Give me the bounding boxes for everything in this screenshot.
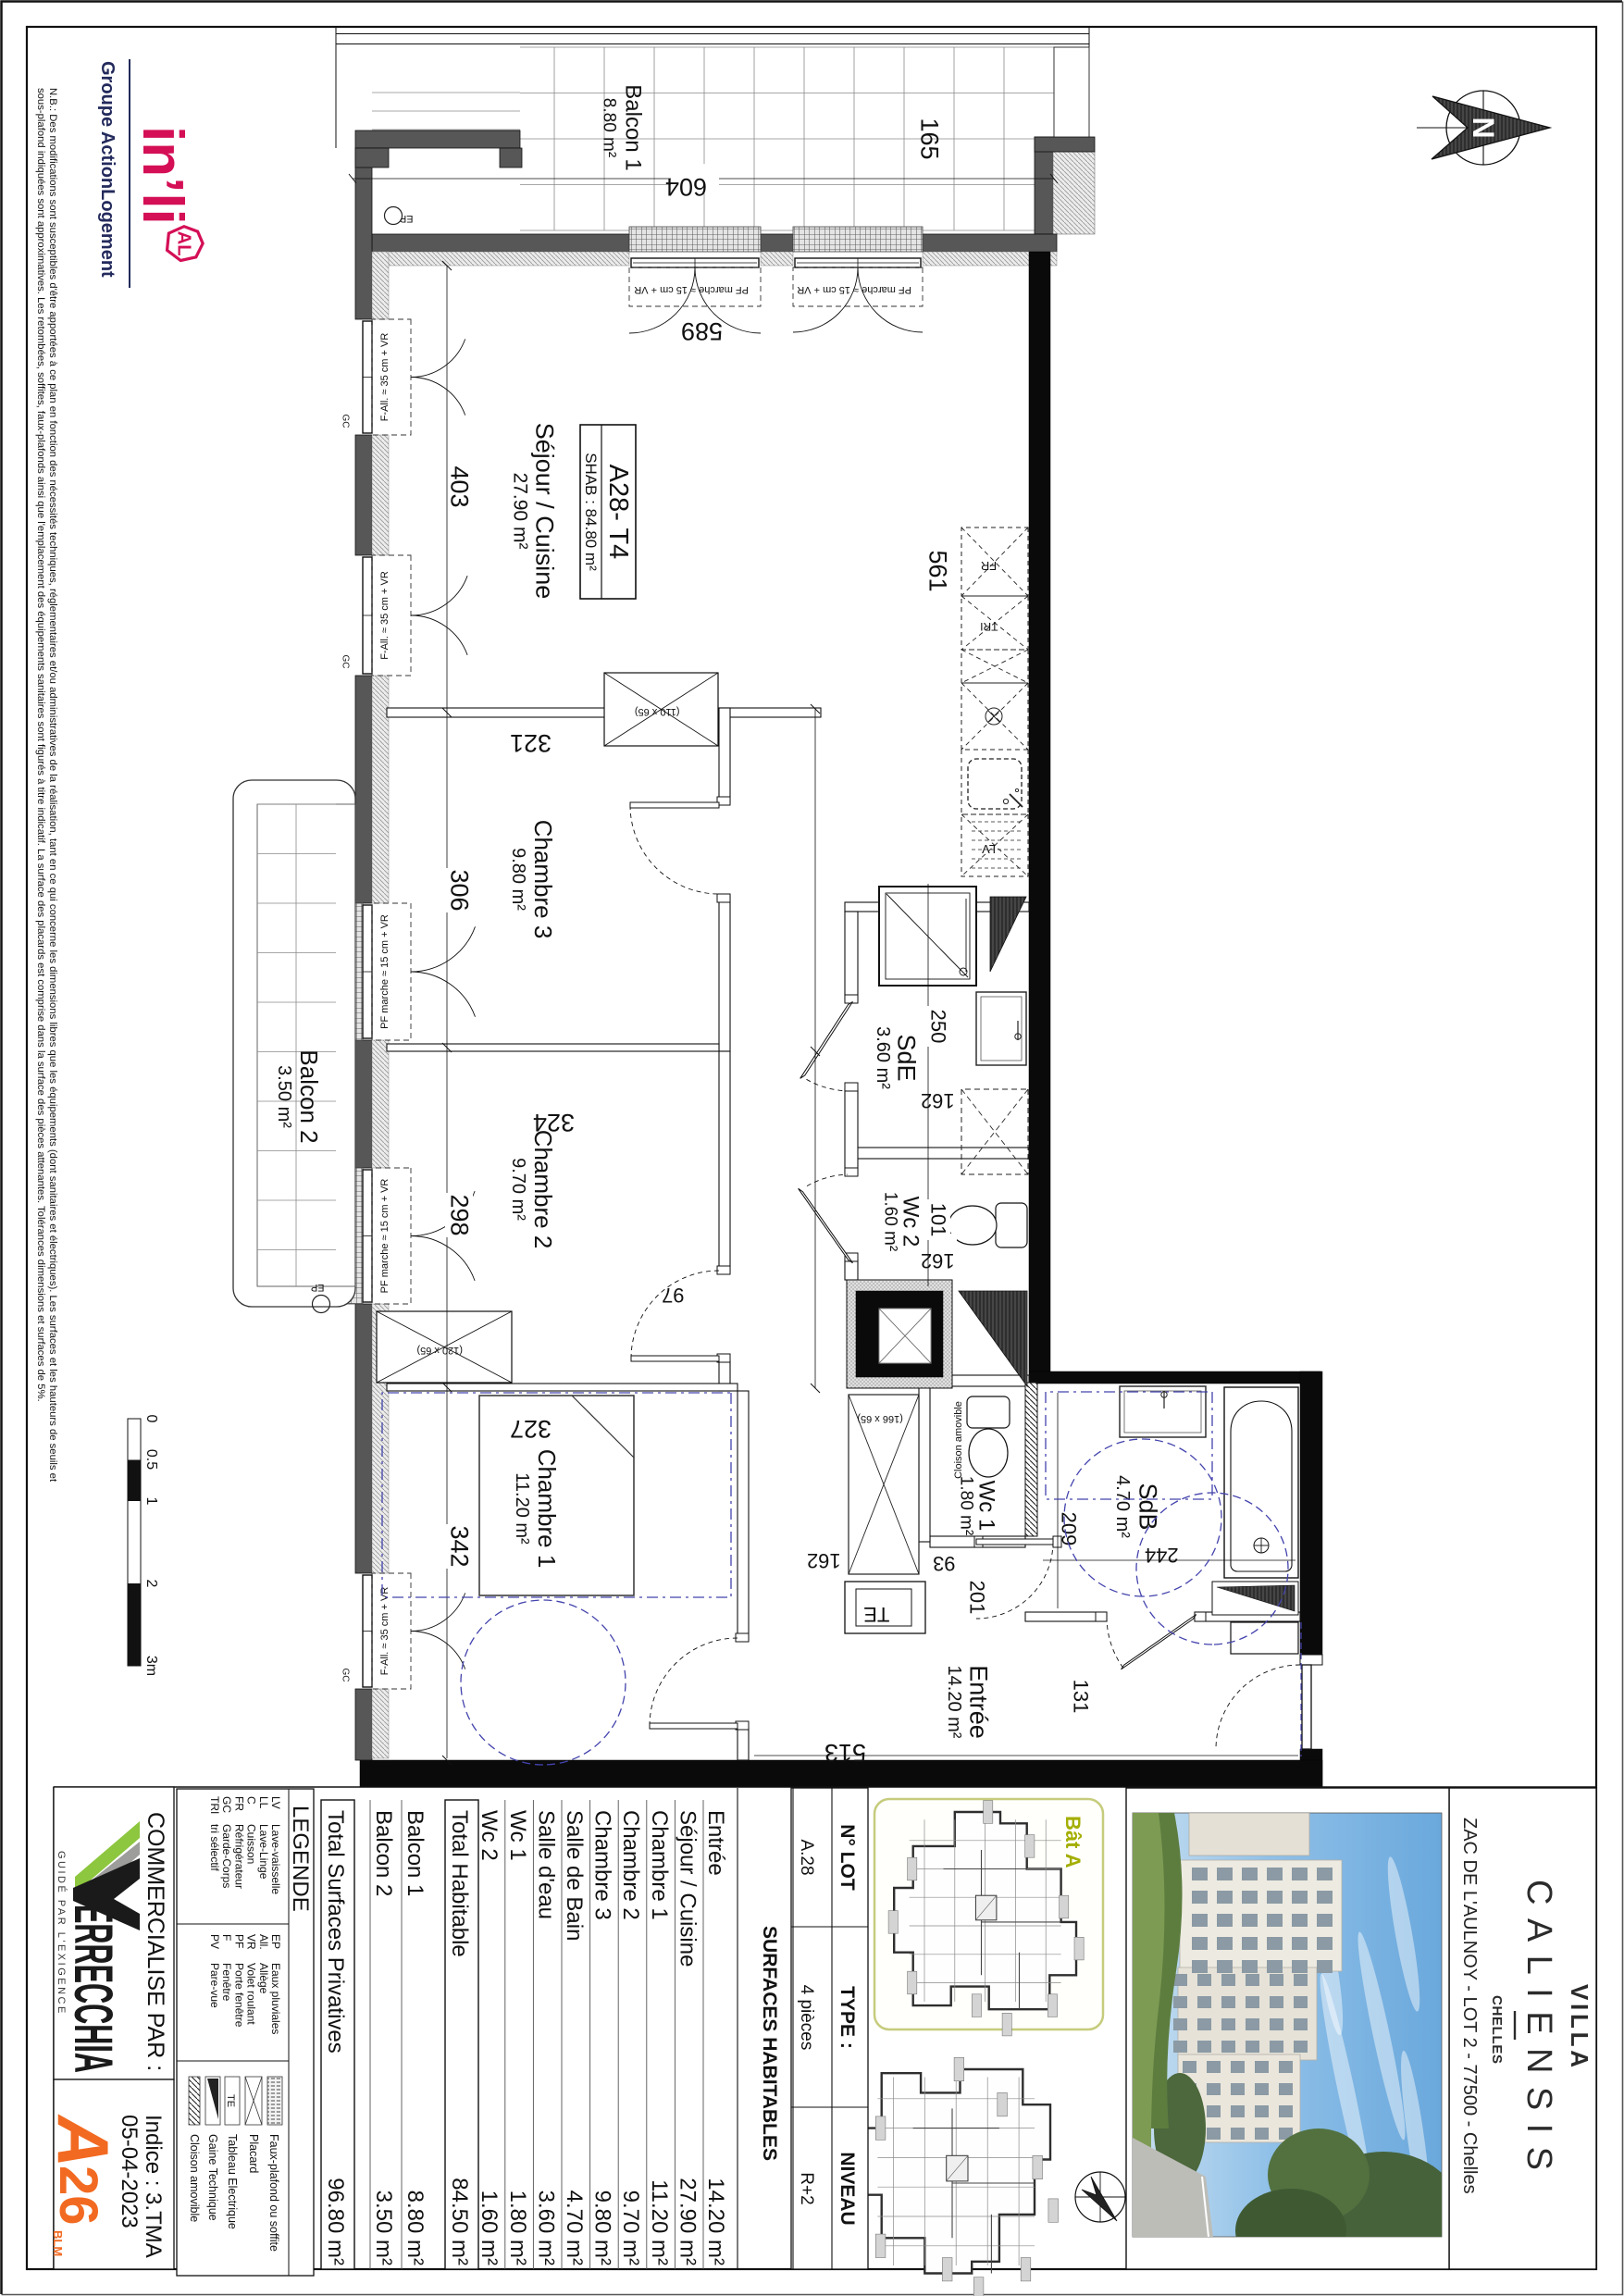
svg-text:Chambre 3: Chambre 3 (529, 820, 557, 939)
svg-text:Bât A: Bât A (1061, 1816, 1085, 1868)
svg-text:93: 93 (933, 1552, 955, 1575)
svg-text:101: 101 (926, 1203, 949, 1237)
svg-text:9.70 m²: 9.70 m² (618, 2191, 643, 2265)
svg-text:Wc 1: Wc 1 (974, 1481, 999, 1532)
svg-text:F-All. ≈ 35 cm + VR: F-All. ≈ 35 cm + VR (379, 571, 391, 660)
svg-text:Wc 1: Wc 1 (505, 1810, 530, 1861)
svg-text:Volet roulant: Volet roulant (245, 1963, 258, 2025)
svg-text:SURFACES HABITABLES: SURFACES HABITABLES (759, 1926, 780, 2161)
svg-text:342: 342 (446, 1525, 474, 1567)
svg-text:EP: EP (269, 1934, 282, 1949)
svg-text:F-All. ≈ 35 cm + VR: F-All. ≈ 35 cm + VR (379, 1587, 391, 1676)
svg-text:ZAC DE L'AULNOY - LOT 2 - 7750: ZAC DE L'AULNOY - LOT 2 - 77500 - Chelle… (1459, 1818, 1480, 2194)
svg-text:Séjour / Cuisine: Séjour / Cuisine (675, 1810, 700, 1967)
svg-text:Fenêtre: Fenêtre (220, 1963, 233, 2002)
svg-text:AL: AL (173, 231, 193, 256)
svg-text:Garde-Corps: Garde-Corps (220, 1824, 233, 1888)
svg-text:PV: PV (208, 1934, 221, 1949)
svg-text:244: 244 (1145, 1544, 1179, 1567)
svg-text:298: 298 (446, 1194, 474, 1235)
svg-text:N: N (1467, 117, 1500, 138)
svg-text:TRI: TRI (208, 1796, 221, 1814)
svg-text:Chambre 1: Chambre 1 (533, 1449, 561, 1569)
svg-text:Lave-Linge: Lave-Linge (257, 1824, 270, 1880)
svg-text:Allège: Allège (257, 1963, 270, 1994)
svg-text:3.50 m²: 3.50 m² (371, 2191, 396, 2265)
svg-text:Chambre 1: Chambre 1 (647, 1810, 672, 1920)
svg-text:Balcon 2: Balcon 2 (295, 1049, 323, 1143)
svg-text:Faux-plafond ou soffite: Faux-plafond ou soffite (267, 2134, 280, 2252)
svg-text:Balcon 1: Balcon 1 (621, 84, 646, 170)
svg-text:SHAB : 84.80 m²: SHAB : 84.80 m² (582, 453, 600, 571)
svg-text:1.60 m²: 1.60 m² (477, 2191, 502, 2265)
svg-text:403: 403 (446, 465, 474, 507)
svg-text:Cloison amovible: Cloison amovible (188, 2134, 201, 2222)
svg-text:LV: LV (269, 1796, 282, 1809)
svg-text:1.60 m²: 1.60 m² (880, 1192, 899, 1251)
svg-text:2: 2 (143, 1580, 159, 1588)
svg-text:Tableau Electrique: Tableau Electrique (226, 2134, 239, 2229)
svg-text:Groupe ActionLogement: Groupe ActionLogement (97, 61, 118, 278)
svg-text:327: 327 (510, 1415, 552, 1443)
svg-text:LL: LL (257, 1796, 270, 1809)
svg-text:131: 131 (1069, 1680, 1092, 1714)
svg-text:162: 162 (807, 1549, 841, 1572)
svg-text:Wc 2: Wc 2 (477, 1810, 502, 1861)
svg-text:11.20 m²: 11.20 m² (647, 2179, 672, 2265)
svg-text:Porte fenêtre: Porte fenêtre (232, 1963, 245, 2028)
svg-text:324: 324 (533, 1109, 575, 1136)
svg-text:Balcon 2: Balcon 2 (371, 1810, 396, 1896)
svg-text:A.28: A.28 (797, 1839, 816, 1875)
svg-text:TE: TE (863, 1603, 889, 1626)
svg-text:PF: PF (232, 1934, 245, 1948)
svg-text:1: 1 (143, 1497, 159, 1506)
svg-text:F-All. ≈ 35 cm + VR: F-All. ≈ 35 cm + VR (379, 333, 391, 422)
svg-text:Entrée: Entrée (965, 1665, 993, 1739)
svg-text:11.20 m²: 11.20 m² (512, 1472, 532, 1545)
svg-text:Cuisson: Cuisson (245, 1824, 258, 1864)
svg-text:BLM: BLM (51, 2230, 65, 2256)
svg-text:A: A (43, 2114, 124, 2167)
svg-text:TE: TE (225, 2094, 236, 2107)
svg-text:3m: 3m (143, 1656, 159, 1676)
svg-text:84.50 m²: 84.50 m² (447, 2178, 472, 2265)
svg-text:(120 x 65): (120 x 65) (416, 1345, 463, 1356)
svg-text:Balcon 1: Balcon 1 (403, 1810, 428, 1896)
svg-text:0: 0 (143, 1415, 159, 1423)
svg-text:Salle d'eau: Salle d'eau (533, 1810, 558, 1919)
svg-text:3.60 m²: 3.60 m² (873, 1026, 893, 1089)
svg-text:Chambre 2: Chambre 2 (618, 1810, 643, 1920)
svg-text:FR: FR (232, 1796, 245, 1811)
svg-text:250: 250 (926, 1010, 949, 1044)
svg-text:4 pièces: 4 pièces (797, 1985, 816, 2051)
svg-text:4.70 m²: 4.70 m² (562, 2191, 587, 2265)
svg-text:Eaux pluviales: Eaux pluviales (269, 1963, 282, 2034)
svg-text:Réfrigérateur: Réfrigérateur (232, 1824, 245, 1889)
svg-text:Total Habitable: Total Habitable (447, 1810, 472, 1957)
svg-text:27.90 m²: 27.90 m² (510, 473, 531, 550)
svg-text:589: 589 (681, 317, 723, 345)
svg-text:NIVEAU: NIVEAU (837, 2152, 858, 2225)
svg-text:C: C (245, 1796, 258, 1805)
svg-text:162: 162 (921, 1089, 955, 1112)
svg-text:Salle de Bain: Salle de Bain (562, 1810, 587, 1941)
svg-text:VILLA: VILLA (1566, 1984, 1593, 2067)
svg-text:N.B.: Des modifications sont s: N.B.: Des modifications sont susceptible… (47, 88, 58, 1483)
svg-text:GUIDÉ PAR L'EXIGENCE: GUIDÉ PAR L'EXIGENCE (56, 1851, 68, 2016)
svg-text:(110 x 65): (110 x 65) (635, 706, 680, 717)
svg-text:96.80 m²: 96.80 m² (323, 2178, 348, 2265)
svg-text:GC: GC (220, 1796, 233, 1813)
svg-text:Indice : 3.TMA: Indice : 3.TMA (141, 2115, 166, 2258)
svg-text:4.70 m²: 4.70 m² (1112, 1475, 1133, 1538)
svg-text:Pare-vue: Pare-vue (208, 1963, 221, 2008)
svg-text:27.90 m²: 27.90 m² (675, 2178, 700, 2265)
svg-text:SdB: SdB (1134, 1483, 1162, 1530)
svg-text:CHELLES: CHELLES (1489, 1995, 1505, 2064)
svg-text:26: 26 (48, 2166, 108, 2226)
svg-text:LEGENDE: LEGENDE (288, 1806, 313, 1912)
svg-text:8.80 m²: 8.80 m² (403, 2191, 428, 2265)
svg-text:PF marche ≈ 15 cm + VR: PF marche ≈ 15 cm + VR (379, 914, 391, 1029)
svg-text:All.: All. (257, 1934, 270, 1950)
svg-text:9.80 m²: 9.80 m² (590, 2191, 615, 2265)
svg-text:GC: GC (341, 1669, 351, 1682)
svg-text:(166 x 65): (166 x 65) (857, 1413, 903, 1424)
svg-text:Placard: Placard (247, 2134, 260, 2173)
svg-text:513: 513 (824, 1739, 866, 1767)
svg-text:VR: VR (245, 1934, 258, 1950)
svg-text:Lave-vaisselle: Lave-vaisselle (269, 1824, 282, 1894)
svg-text:LV: LV (982, 842, 996, 856)
svg-text:in’li: in’li (130, 126, 194, 225)
svg-text:1.80 m²: 1.80 m² (505, 2191, 530, 2265)
svg-text:Chambre 3: Chambre 3 (590, 1810, 615, 1920)
svg-text:9.80 m²: 9.80 m² (508, 848, 528, 911)
svg-text:97: 97 (662, 1284, 684, 1307)
svg-text:Cloison amovible: Cloison amovible (953, 1401, 964, 1479)
svg-text:Gaine Technique: Gaine Technique (206, 2134, 219, 2221)
svg-text:0.5: 0.5 (143, 1449, 159, 1470)
svg-text:3.50 m²: 3.50 m² (274, 1065, 294, 1128)
svg-text:165: 165 (916, 118, 944, 159)
svg-text:3.60 m²: 3.60 m² (533, 2191, 558, 2265)
svg-text:F: F (220, 1934, 233, 1941)
svg-text:Entrée: Entrée (703, 1810, 728, 1876)
svg-text:1.80 m²: 1.80 m² (956, 1476, 975, 1535)
svg-text:209: 209 (1057, 1512, 1080, 1546)
svg-text:14.20 m²: 14.20 m² (703, 2178, 728, 2265)
svg-text:9.70 m²: 9.70 m² (508, 1158, 528, 1221)
svg-text:tri sélectif: tri sélectif (208, 1824, 221, 1871)
svg-text:604: 604 (665, 173, 707, 201)
svg-text:GC: GC (341, 655, 351, 669)
svg-text:EP: EP (400, 213, 414, 224)
svg-text:ÉRRECCHIA: ÉRRECCHIA (63, 1905, 123, 2073)
svg-text:GC: GC (341, 415, 351, 428)
svg-text:306: 306 (446, 869, 474, 911)
svg-text:Chambre 2: Chambre 2 (529, 1130, 557, 1249)
svg-text:A28- T4: A28- T4 (603, 465, 633, 560)
svg-text:CALIENSIS: CALIENSIS (1519, 1880, 1558, 2170)
svg-text:TRI: TRI (980, 620, 998, 633)
svg-text:EP: EP (311, 1282, 325, 1293)
svg-text:COMMERCIALISE PAR :: COMMERCIALISE PAR : (143, 1812, 168, 2071)
svg-text:PF marche ≈ 15 cm + VR: PF marche ≈ 15 cm + VR (379, 1179, 391, 1294)
svg-text:162: 162 (921, 1249, 955, 1272)
svg-text:SdE: SdE (893, 1034, 921, 1081)
svg-text:TYPE :: TYPE : (837, 1986, 858, 2049)
svg-text:R+2: R+2 (797, 2172, 816, 2204)
svg-text:321: 321 (510, 729, 552, 757)
svg-text:201: 201 (965, 1581, 988, 1615)
svg-text:Séjour / Cuisine: Séjour / Cuisine (531, 423, 559, 600)
svg-text:14.20 m²: 14.20 m² (944, 1666, 964, 1739)
svg-text:561: 561 (924, 550, 952, 591)
svg-text:FR: FR (981, 559, 997, 573)
svg-text:Wc 2: Wc 2 (899, 1197, 924, 1247)
svg-text:N° LOT: N° LOT (837, 1824, 858, 1891)
svg-text:sous-plafond indiquées sont ap: sous-plafond indiquées sont approximativ… (35, 88, 46, 1402)
svg-text:Total Surfaces Privatives: Total Surfaces Privatives (323, 1810, 348, 2054)
svg-text:8.80 m²: 8.80 m² (599, 98, 618, 157)
